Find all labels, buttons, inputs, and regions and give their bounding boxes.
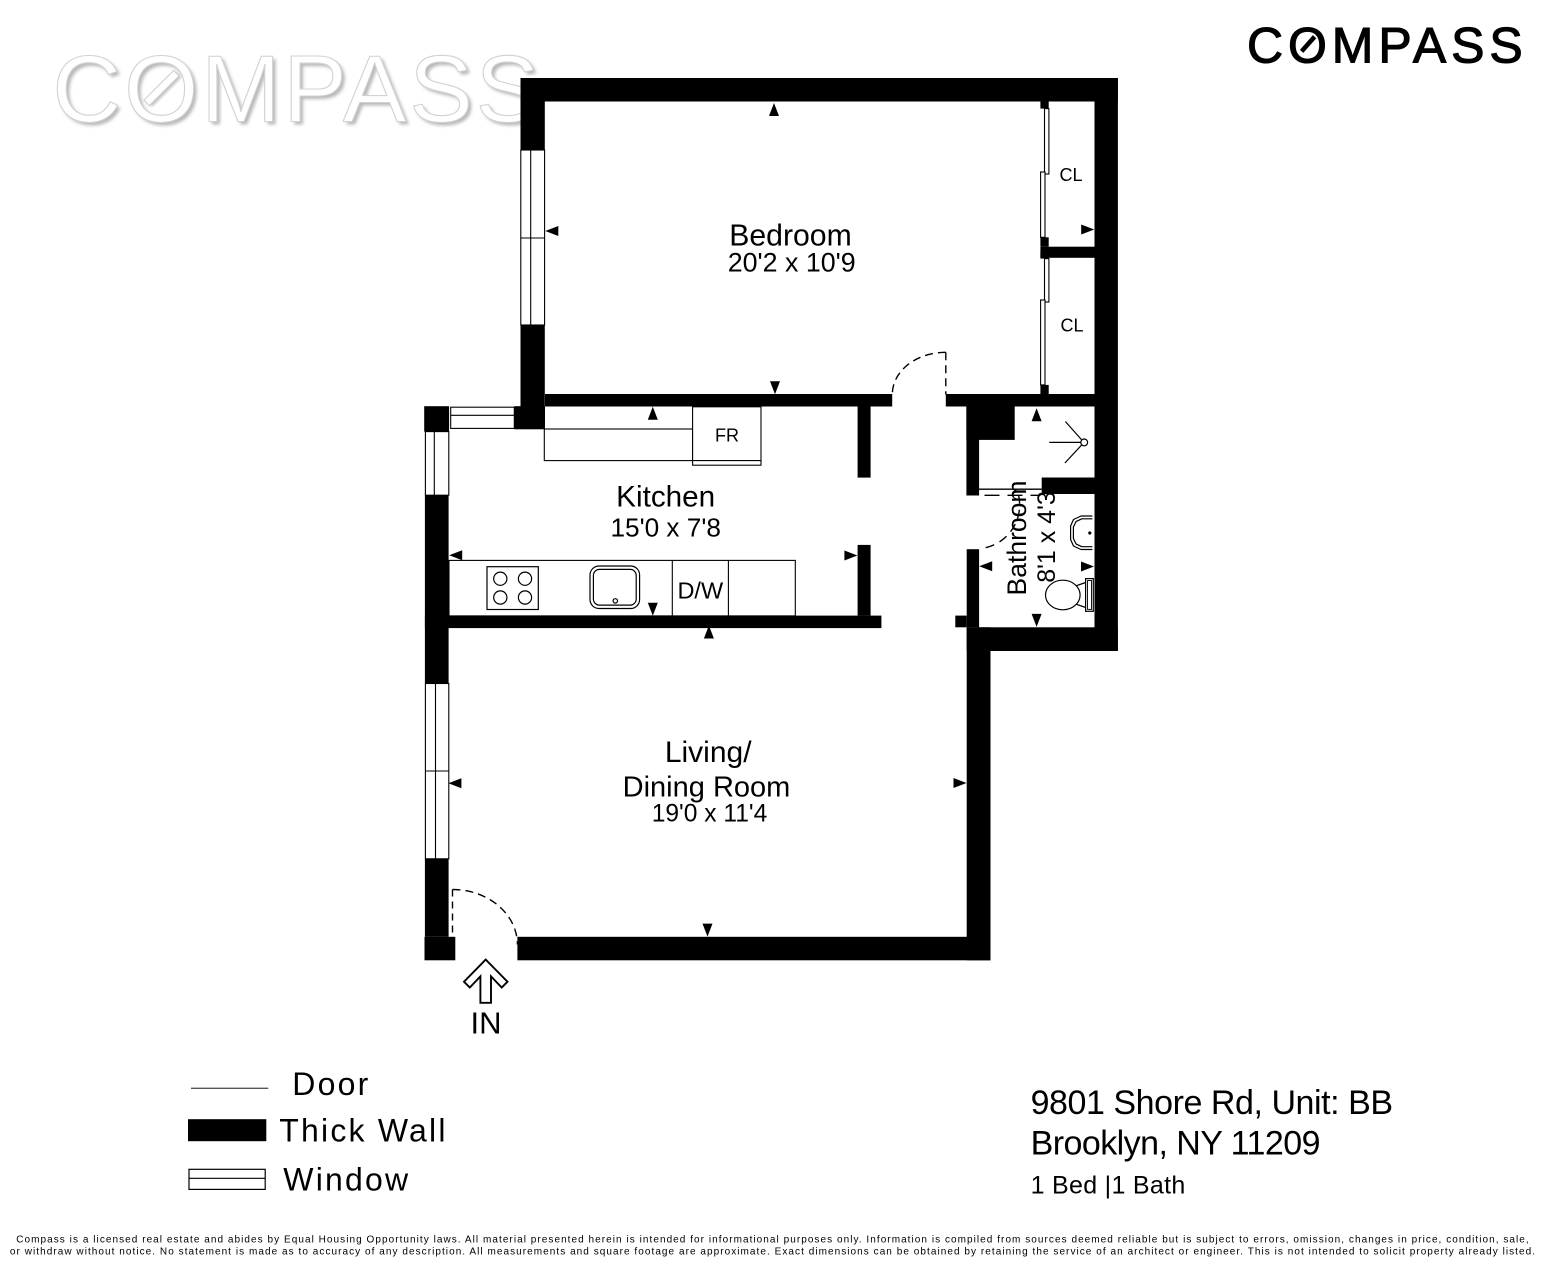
svg-text:Bathroom: Bathroom bbox=[1002, 481, 1032, 596]
svg-text:1 Bed |1 Bath: 1 Bed |1 Bath bbox=[1031, 1172, 1186, 1200]
svg-text:Door: Door bbox=[292, 1066, 370, 1102]
svg-text:COMPASS: COMPASS bbox=[1247, 18, 1528, 74]
svg-text:IN: IN bbox=[471, 1006, 502, 1041]
svg-text:15'0 x 7'8: 15'0 x 7'8 bbox=[610, 512, 720, 542]
svg-text:Brooklyn, NY 11209: Brooklyn, NY 11209 bbox=[1031, 1125, 1320, 1163]
svg-text:19'0 x 11'4: 19'0 x 11'4 bbox=[652, 801, 768, 828]
svg-text:Thick Wall: Thick Wall bbox=[279, 1113, 447, 1149]
svg-text:9801 Shore Rd, Unit: BB: 9801 Shore Rd, Unit: BB bbox=[1031, 1084, 1393, 1122]
svg-text:or withdraw without notice. No: or withdraw without notice. No statement… bbox=[10, 1247, 1536, 1258]
svg-text:Compass is a licensed real est: Compass is a licensed real estate and ab… bbox=[16, 1235, 1529, 1246]
svg-text:CL: CL bbox=[1060, 316, 1083, 336]
svg-text:Living/: Living/ bbox=[665, 736, 752, 769]
svg-text:20'2 x 10'9: 20'2 x 10'9 bbox=[728, 247, 856, 277]
svg-text:Dining Room: Dining Room bbox=[623, 771, 791, 803]
svg-text:D/W: D/W bbox=[677, 578, 724, 604]
svg-text:FR: FR bbox=[715, 426, 739, 446]
svg-text:COMPASS: COMPASS bbox=[53, 36, 543, 142]
svg-text:CL: CL bbox=[1059, 165, 1082, 185]
svg-text:Kitchen: Kitchen bbox=[616, 481, 715, 514]
svg-text:8'1 x 4'3: 8'1 x 4'3 bbox=[1033, 491, 1061, 583]
svg-text:Window: Window bbox=[283, 1162, 410, 1198]
